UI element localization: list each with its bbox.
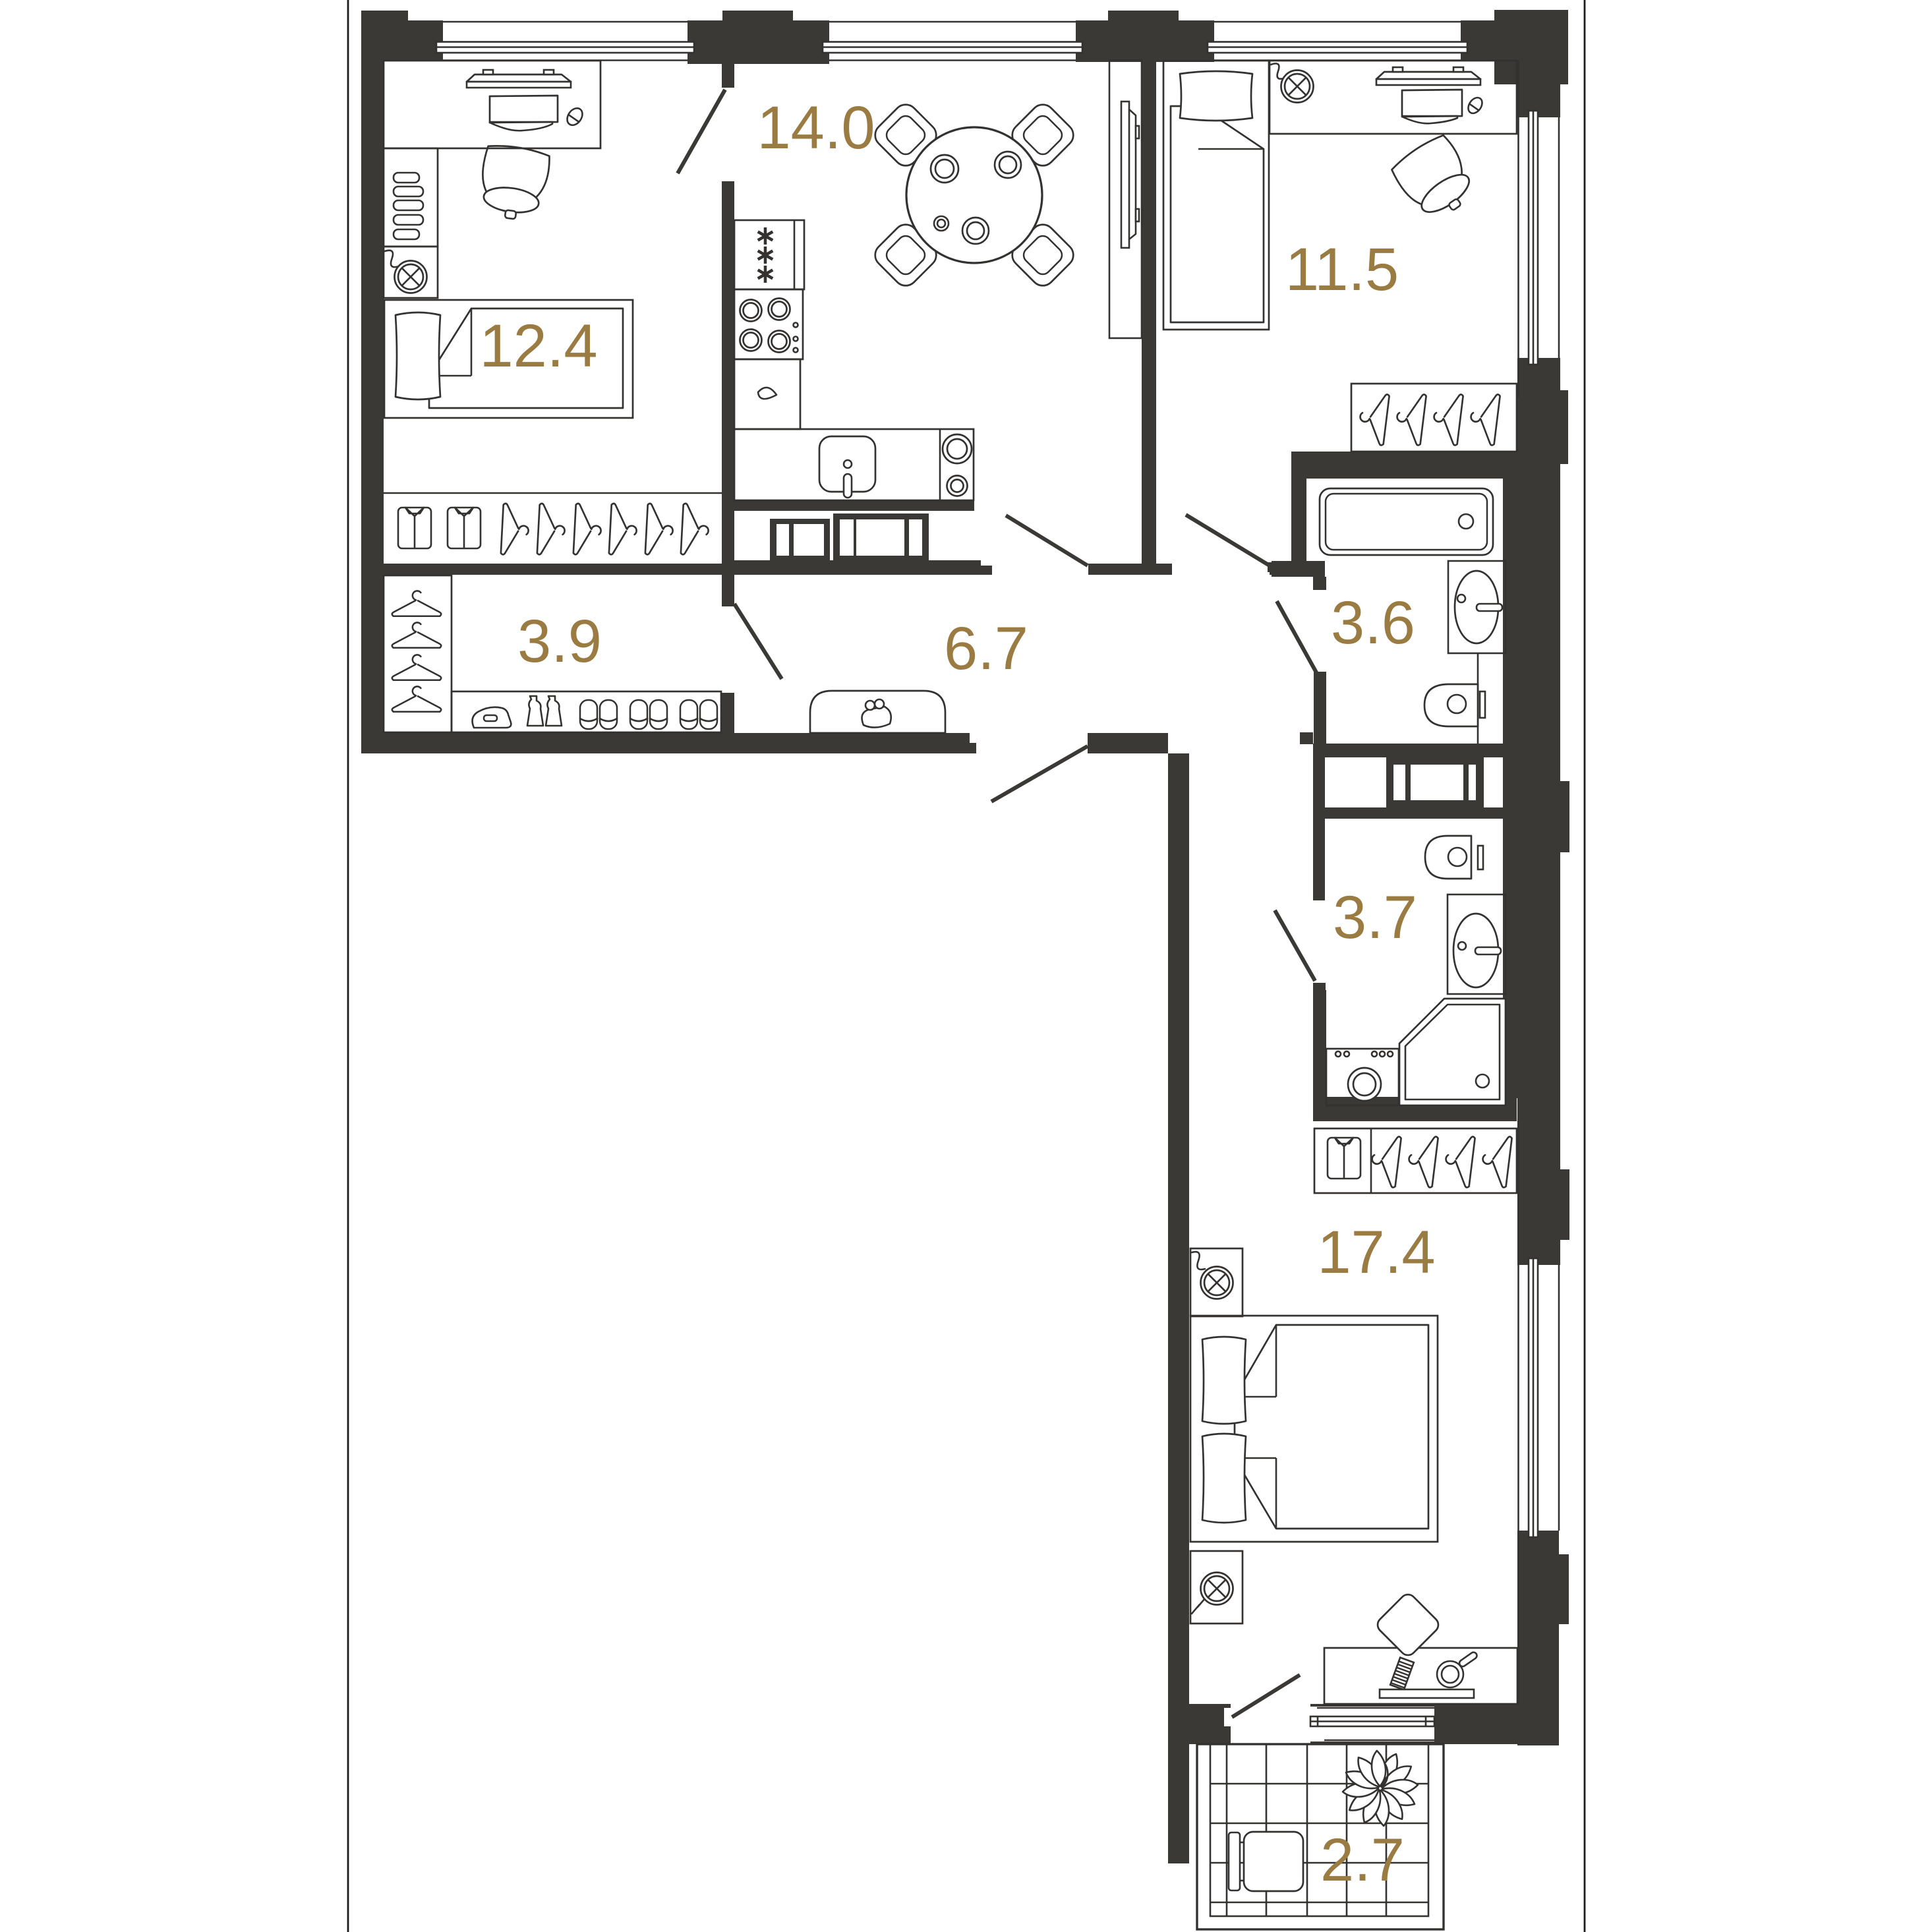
- svg-text:3.9: 3.9: [517, 608, 602, 675]
- svg-text:14.0: 14.0: [757, 94, 875, 161]
- svg-text:12.4: 12.4: [479, 312, 597, 380]
- svg-text:11.5: 11.5: [1285, 236, 1399, 303]
- svg-text:2.7: 2.7: [1320, 1827, 1405, 1894]
- svg-text:3.6: 3.6: [1331, 589, 1415, 657]
- svg-text:6.7: 6.7: [944, 615, 1028, 682]
- svg-text:3.7: 3.7: [1333, 884, 1417, 951]
- svg-text:17.4: 17.4: [1317, 1219, 1435, 1286]
